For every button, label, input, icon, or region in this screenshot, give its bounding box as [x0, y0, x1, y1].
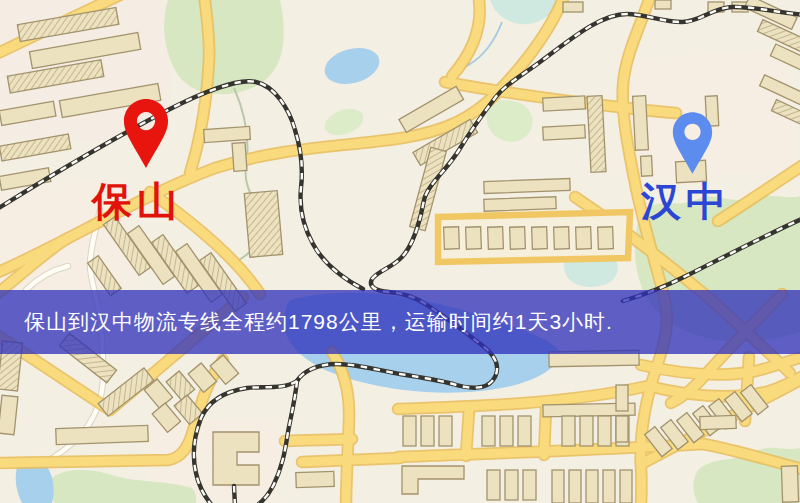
route-info-text: 保山到汉中物流专线全程约1798公里，运输时间约1天3小时. — [24, 308, 613, 336]
map-canvas[interactable]: 保山 汉中 保山到汉中物流专线全程约1798公里，运输时间约1天3小时. — [0, 0, 800, 503]
origin-pin-icon[interactable] — [123, 95, 169, 172]
destination-city-label: 汉中 — [641, 181, 731, 221]
route-info-banner: 保山到汉中物流专线全程约1798公里，运输时间约1天3小时. — [0, 290, 800, 354]
destination-pin-icon[interactable] — [672, 108, 713, 178]
map-artwork — [0, 0, 800, 503]
origin-city-label: 保山 — [92, 181, 182, 221]
